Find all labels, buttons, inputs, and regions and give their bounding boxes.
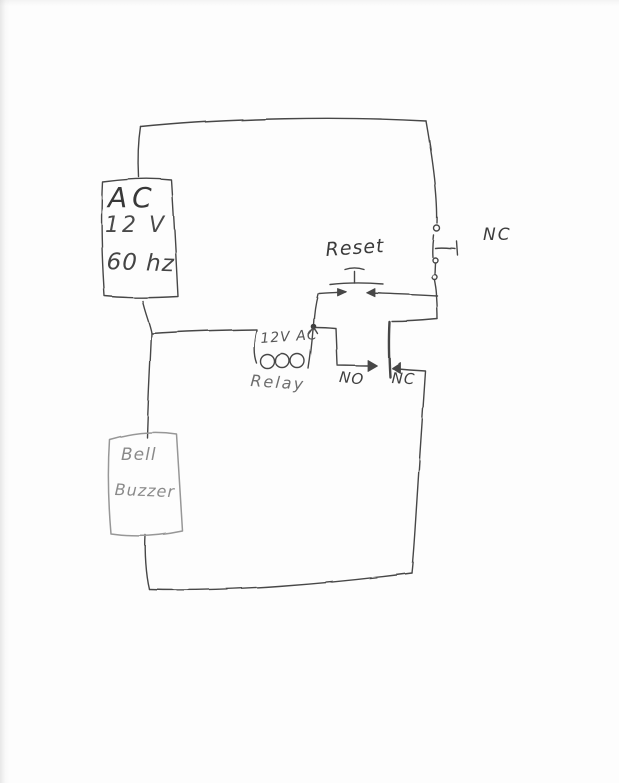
label-relay: Relay (250, 373, 306, 393)
wire-junction-to-no (316, 328, 369, 367)
reset-bar (330, 283, 383, 285)
relay-armature (389, 322, 390, 377)
wire-top-right-down (426, 121, 437, 223)
reset-actuator-top (345, 268, 364, 270)
nc-button-wire-mid (435, 263, 436, 274)
reset-right-contact-wire (370, 293, 438, 296)
nc-button-terminal-top (434, 225, 440, 231)
reset-right-contact-arrowhead (367, 289, 376, 297)
wire-branch-to-coil (152, 330, 257, 334)
nc-button-terminal-bottom (432, 275, 437, 280)
no-contact-arrowhead (368, 361, 378, 372)
label-relay-rating: 12V AC (260, 328, 318, 346)
relay-coil-left-leg (254, 330, 256, 363)
wire-bottom (150, 573, 412, 590)
wire-reset-to-junction (314, 294, 319, 325)
wire-top (141, 118, 426, 127)
label-source-type: AC (108, 184, 157, 212)
nc-button-actuator (435, 248, 455, 249)
label-load-bell: Bell (121, 447, 157, 464)
label-reset-button: Reset (325, 237, 385, 260)
wire-source-top (139, 127, 141, 177)
nc-button-wire-down (435, 280, 438, 319)
label-source-frequency: 60 hz (106, 251, 175, 276)
nc-button-bar (432, 235, 433, 257)
label-load-buzzer: Buzzer (114, 482, 175, 500)
circuit-sketch (0, 0, 619, 783)
wire-right-down (412, 372, 426, 573)
relay-coil-loop-2 (276, 354, 290, 368)
label-source-voltage: 12 V (105, 215, 167, 237)
wire-source-bottom (143, 301, 152, 438)
relay-coil-loop-1 (261, 355, 275, 369)
label-nc-pushbutton: NC (483, 227, 512, 244)
relay-coil-loop-3 (291, 354, 305, 368)
nc-button-terminal-mid (433, 258, 438, 263)
scanned-paper-page: AC 12 V 60 hz Reset NC 12V AC Relay NO N… (0, 0, 619, 783)
wire-ncbutton-to-armature (392, 319, 438, 322)
wire-bottom-left-up (145, 535, 149, 590)
nc-button-actuator-cap (457, 241, 458, 255)
label-contact-no: NO (338, 370, 364, 388)
label-contact-nc: NC (391, 371, 415, 387)
reset-left-contact-arrowhead (338, 289, 347, 297)
